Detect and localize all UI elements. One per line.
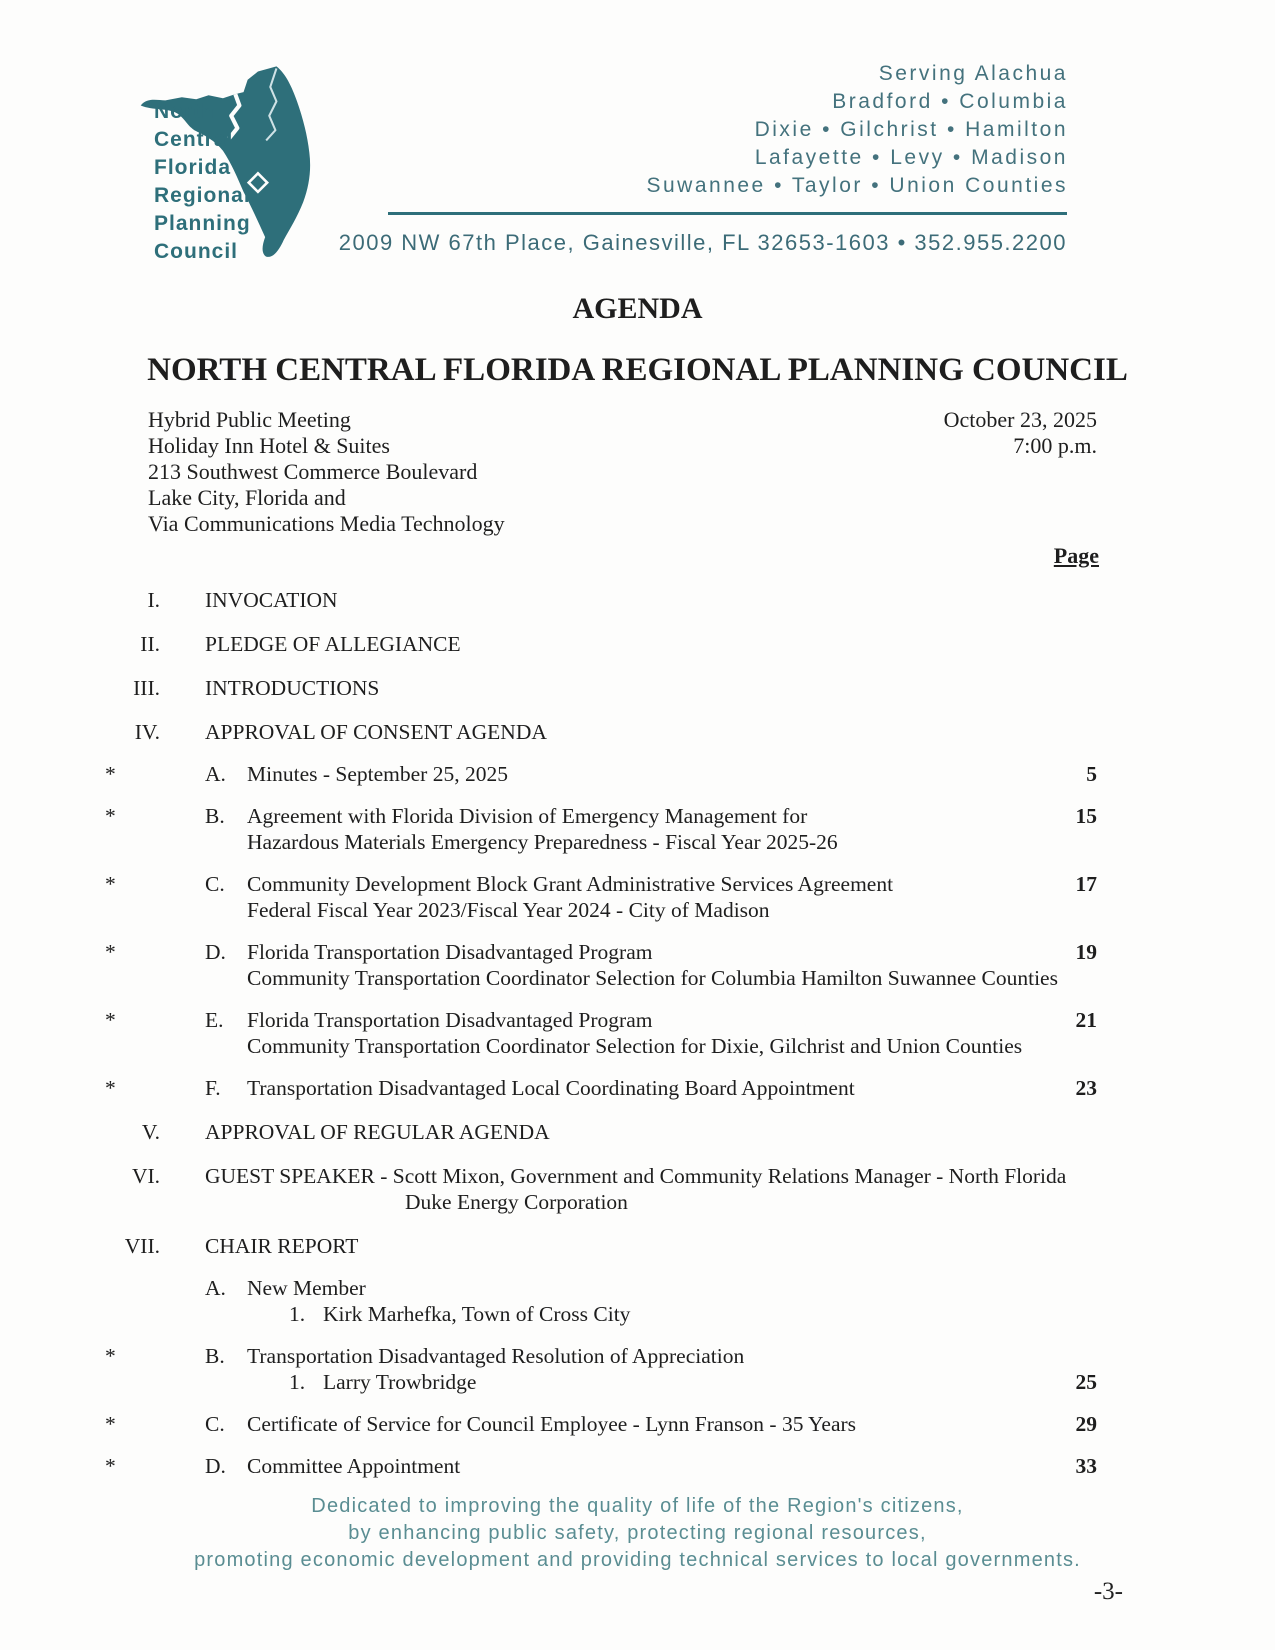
- logo-text: North Central Florida Regional Planning …: [154, 98, 251, 266]
- item-page-number: 29: [1047, 1411, 1097, 1437]
- item-title: APPROVAL OF REGULAR AGENDA: [205, 1119, 1097, 1145]
- item-text: Community Development Block Grant Admini…: [247, 871, 1097, 923]
- consent-star: *: [105, 803, 205, 855]
- agenda-item-introductions: III. INTRODUCTIONS: [105, 675, 1097, 701]
- item-text: Florida Transportation Disadvantaged Pro…: [247, 939, 1097, 991]
- item-numeral: V.: [105, 1119, 160, 1145]
- item-letter: B.: [205, 1343, 247, 1395]
- consent-item-f: * F. Transportation Disadvantaged Local …: [105, 1075, 1097, 1101]
- item-numeral: III.: [105, 675, 160, 701]
- consent-item-b: * B. Agreement with Florida Division of …: [105, 803, 1097, 855]
- location-line: Holiday Inn Hotel & Suites: [148, 433, 505, 459]
- item-letter: F.: [205, 1075, 247, 1101]
- item-title: CHAIR REPORT: [205, 1233, 1097, 1259]
- serving-line: Dixie • Gilchrist • Hamilton: [646, 116, 1068, 144]
- agenda-item-guest-speaker: VI. GUEST SPEAKER - Scott Mixon, Governm…: [105, 1163, 1097, 1215]
- item-line: Transportation Disadvantaged Local Coord…: [247, 1075, 1047, 1101]
- item-text: New Member 1. Kirk Marhefka, Town of Cro…: [247, 1275, 1097, 1327]
- item-line: Federal Fiscal Year 2023/Fiscal Year 202…: [247, 897, 1097, 923]
- item-text: Florida Transportation Disadvantaged Pro…: [247, 1007, 1097, 1059]
- chair-star: *: [105, 1343, 205, 1395]
- item-line: Florida Transportation Disadvantaged Pro…: [247, 1007, 1047, 1033]
- location-line: Via Communications Media Technology: [148, 511, 505, 537]
- item-letter: D.: [205, 1453, 247, 1479]
- agenda-list: I. INVOCATION II. PLEDGE OF ALLEGIANCE I…: [0, 587, 1275, 1479]
- serving-line: Lafayette • Levy • Madison: [646, 144, 1068, 172]
- consent-star: *: [105, 939, 205, 991]
- item-numeral: IV.: [105, 719, 160, 745]
- item-page-number: 19: [1047, 939, 1097, 965]
- item-title: APPROVAL OF CONSENT AGENDA: [205, 719, 1097, 745]
- logo-line: Planning: [154, 210, 251, 238]
- chair-item-a: A. New Member 1. Kirk Marhefka, Town of …: [105, 1275, 1097, 1327]
- item-letter: E.: [205, 1007, 247, 1059]
- item-line: Committee Appointment: [247, 1453, 1047, 1479]
- consent-star: *: [105, 1007, 205, 1059]
- council-name-title: NORTH CENTRAL FLORIDA REGIONAL PLANNING …: [0, 352, 1275, 389]
- agenda-document-page: North Central Florida Regional Planning …: [0, 0, 1275, 1650]
- consent-item-a: * A. Minutes - September 25, 2025 5: [105, 761, 1097, 787]
- item-title: INVOCATION: [205, 587, 1097, 613]
- consent-item-d: * D. Florida Transportation Disadvantage…: [105, 939, 1097, 991]
- page-column-header: Page: [0, 543, 1275, 569]
- chair-item-d: * D. Committee Appointment 33: [105, 1453, 1097, 1479]
- item-letter: C.: [205, 871, 247, 923]
- meeting-date: October 23, 2025: [944, 407, 1097, 433]
- item-title: PLEDGE OF ALLEGIANCE: [205, 631, 1097, 657]
- item-page-number: 33: [1047, 1453, 1097, 1479]
- item-line: New Member: [247, 1275, 1097, 1301]
- item-numeral: I.: [105, 587, 160, 613]
- agenda-item-invocation: I. INVOCATION: [105, 587, 1097, 613]
- consent-star: *: [105, 1075, 205, 1101]
- chair-item-b: * B. Transportation Disadvantaged Resolu…: [105, 1343, 1097, 1395]
- logo-line: Council: [154, 238, 251, 266]
- meeting-location: Hybrid Public Meeting Holiday Inn Hotel …: [148, 407, 505, 537]
- item-numeral: II.: [105, 631, 160, 657]
- item-page-number: 5: [1047, 761, 1097, 787]
- logo-line: North: [154, 98, 251, 126]
- agenda-item-regular-agenda: V. APPROVAL OF REGULAR AGENDA: [105, 1119, 1097, 1145]
- meeting-datetime: October 23, 2025 7:00 p.m.: [944, 407, 1097, 537]
- meeting-time: 7:00 p.m.: [944, 433, 1097, 459]
- address-line: 2009 NW 67th Place, Gainesville, FL 3265…: [339, 230, 1067, 256]
- item-line: Community Transportation Coordinator Sel…: [247, 1033, 1097, 1059]
- consent-item-e: * E. Florida Transportation Disadvantage…: [105, 1007, 1097, 1059]
- document-title: AGENDA: [0, 292, 1275, 326]
- item-text: Transportation Disadvantaged Local Coord…: [247, 1075, 1097, 1101]
- agenda-item-consent-agenda: IV. APPROVAL OF CONSENT AGENDA: [105, 719, 1097, 745]
- item-title: GUEST SPEAKER - Scott Mixon, Government …: [205, 1163, 1097, 1215]
- item-numeral: VII.: [105, 1233, 160, 1259]
- location-line: Lake City, Florida and: [148, 485, 505, 511]
- item-letter: B.: [205, 803, 247, 855]
- numbered-item-number: 1.: [289, 1369, 323, 1395]
- item-letter: A.: [205, 1275, 247, 1327]
- location-line: 213 Southwest Commerce Boulevard: [148, 459, 505, 485]
- item-text: Certificate of Service for Council Emplo…: [247, 1411, 1097, 1437]
- item-page-number: 17: [1047, 871, 1097, 897]
- item-line: Community Transportation Coordinator Sel…: [247, 965, 1097, 991]
- item-line: Certificate of Service for Council Emplo…: [247, 1411, 1047, 1437]
- council-logo: North Central Florida Regional Planning …: [136, 52, 348, 270]
- letterhead: North Central Florida Regional Planning …: [0, 0, 1275, 278]
- chair-star: *: [105, 1453, 205, 1479]
- mission-line: promoting economic development and provi…: [0, 1547, 1275, 1574]
- numbered-item-text: Kirk Marhefka, Town of Cross City: [323, 1301, 1097, 1327]
- serving-line: Serving Alachua: [646, 60, 1068, 88]
- item-text: Agreement with Florida Division of Emerg…: [247, 803, 1097, 855]
- agenda-item-chair-report: VII. CHAIR REPORT: [105, 1233, 1097, 1259]
- serving-line: Suwannee • Taylor • Union Counties: [646, 172, 1068, 200]
- item-letter: D.: [205, 939, 247, 991]
- item-line: Florida Transportation Disadvantaged Pro…: [247, 939, 1047, 965]
- chair-star: [105, 1275, 205, 1327]
- page-number: -3-: [0, 1578, 1275, 1606]
- item-page-number: 21: [1047, 1007, 1097, 1033]
- location-line: Hybrid Public Meeting: [148, 407, 505, 433]
- mission-statement: Dedicated to improving the quality of li…: [0, 1493, 1275, 1574]
- consent-star: *: [105, 871, 205, 923]
- serving-counties: Serving Alachua Bradford • Columbia Dixi…: [646, 60, 1068, 200]
- logo-line: Central: [154, 126, 251, 154]
- mission-line: by enhancing public safety, protecting r…: [0, 1520, 1275, 1547]
- item-letter: C.: [205, 1411, 247, 1437]
- item-line: Agreement with Florida Division of Emerg…: [247, 803, 1047, 829]
- item-line: Transportation Disadvantaged Resolution …: [247, 1343, 1097, 1369]
- item-text: Minutes - September 25, 2025 5: [247, 761, 1097, 787]
- item-page-number: 15: [1047, 803, 1097, 829]
- numbered-item-text: Larry Trowbridge: [323, 1369, 1047, 1395]
- serving-line: Bradford • Columbia: [646, 88, 1068, 116]
- item-text: Committee Appointment 33: [247, 1453, 1097, 1479]
- mission-line: Dedicated to improving the quality of li…: [0, 1493, 1275, 1520]
- consent-star: *: [105, 761, 205, 787]
- chair-item-c: * C. Certificate of Service for Council …: [105, 1411, 1097, 1437]
- item-page-number: 25: [1047, 1369, 1097, 1395]
- item-line: Community Development Block Grant Admini…: [247, 871, 1047, 897]
- item-numeral: VI.: [105, 1163, 160, 1215]
- chair-star: *: [105, 1411, 205, 1437]
- header-divider: [388, 212, 1067, 215]
- item-line: Hazardous Materials Emergency Preparedne…: [247, 829, 1097, 855]
- item-line: Minutes - September 25, 2025: [247, 761, 1047, 787]
- logo-line: Regional: [154, 182, 251, 210]
- agenda-item-pledge: II. PLEDGE OF ALLEGIANCE: [105, 631, 1097, 657]
- logo-line: Florida: [154, 154, 251, 182]
- numbered-item-number: 1.: [289, 1301, 323, 1327]
- item-letter: A.: [205, 761, 247, 787]
- item-title-line2: Duke Energy Corporation: [405, 1189, 1097, 1215]
- item-page-number: 23: [1047, 1075, 1097, 1101]
- consent-item-c: * C. Community Development Block Grant A…: [105, 871, 1097, 923]
- meeting-info: Hybrid Public Meeting Holiday Inn Hotel …: [0, 389, 1275, 537]
- item-title: INTRODUCTIONS: [205, 675, 1097, 701]
- item-text: Transportation Disadvantaged Resolution …: [247, 1343, 1097, 1395]
